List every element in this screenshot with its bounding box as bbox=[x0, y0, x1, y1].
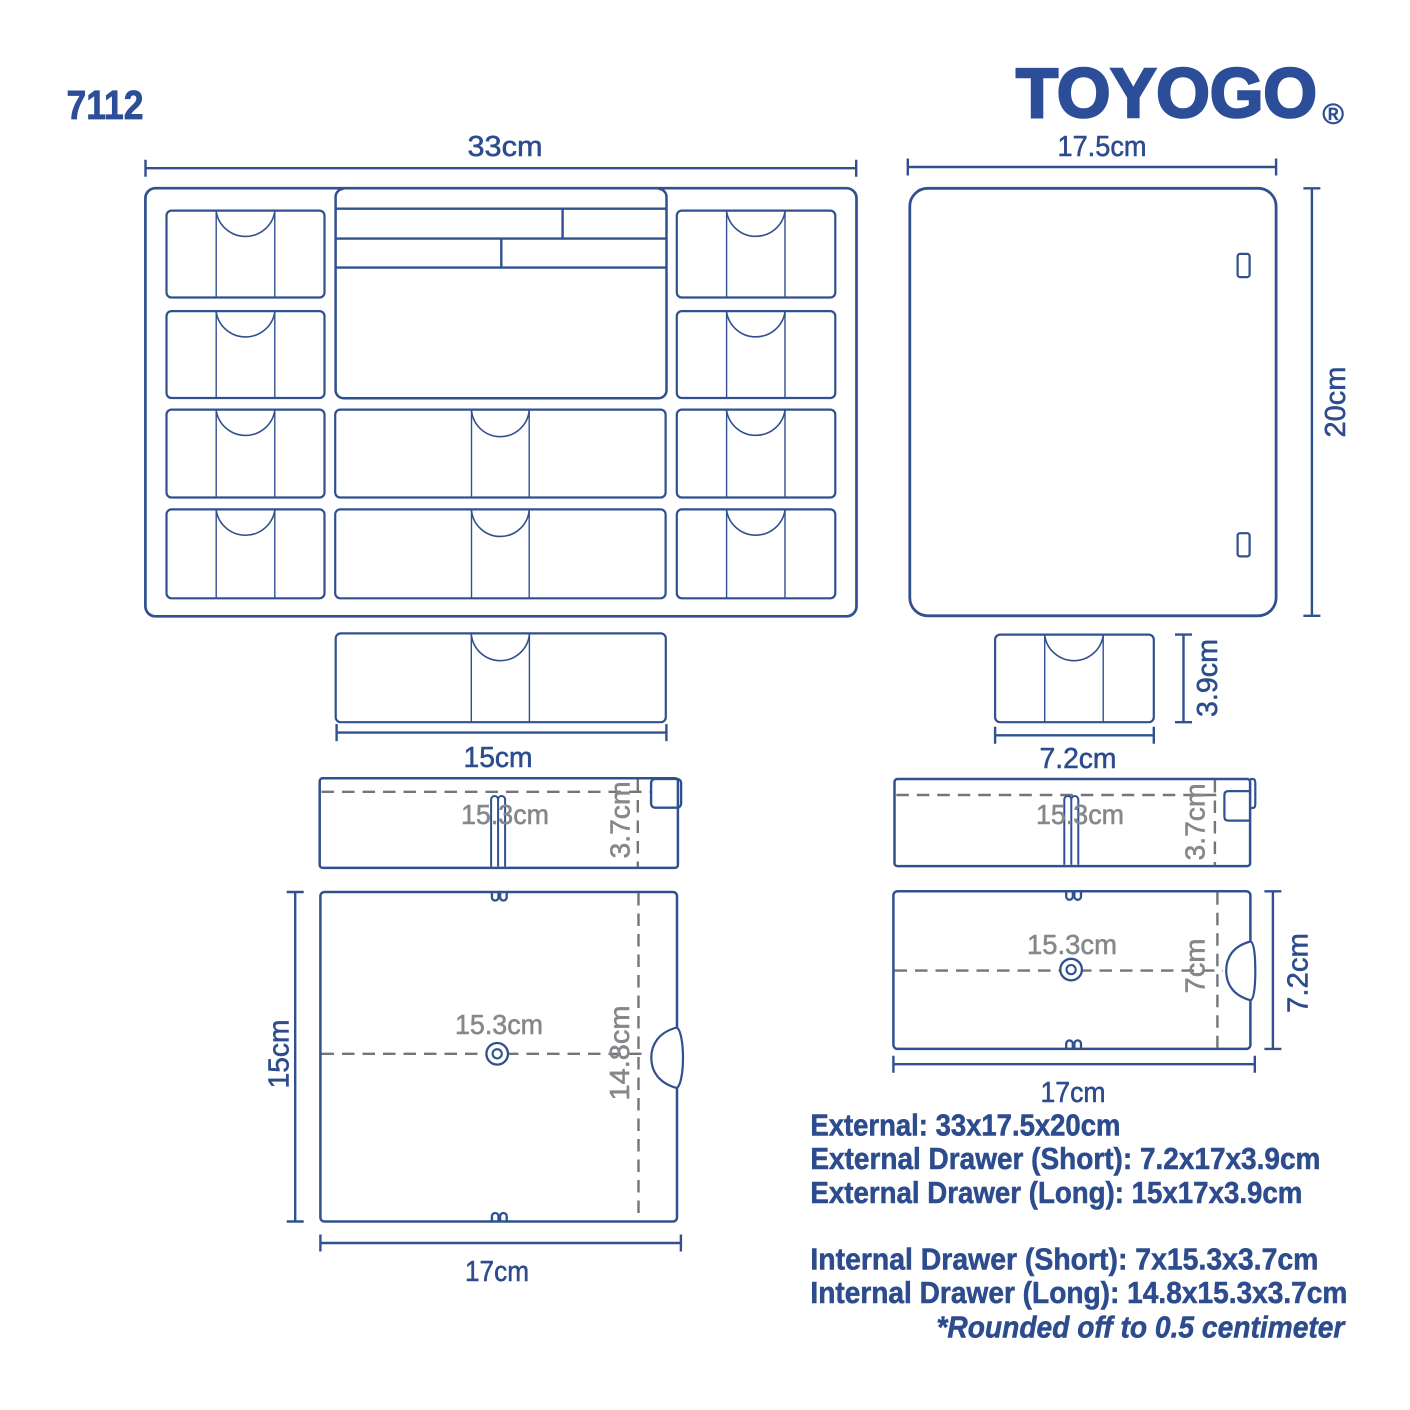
svg-text:®: ® bbox=[1323, 99, 1344, 131]
svg-text:20cm: 20cm bbox=[1320, 367, 1352, 438]
svg-text:*Rounded off to 0.5 centimeter: *Rounded off to 0.5 centimeter bbox=[936, 1310, 1346, 1345]
svg-text:3.7cm: 3.7cm bbox=[1180, 784, 1211, 861]
svg-text:14.8cm: 14.8cm bbox=[604, 1006, 635, 1101]
svg-text:15.3cm: 15.3cm bbox=[1036, 799, 1124, 830]
svg-text:15.3cm: 15.3cm bbox=[455, 1009, 543, 1040]
svg-text:External: 33x17.5x20cm: External: 33x17.5x20cm bbox=[810, 1108, 1120, 1143]
svg-text:15cm: 15cm bbox=[264, 1020, 296, 1089]
svg-text:15cm: 15cm bbox=[464, 742, 533, 774]
svg-text:15.3cm: 15.3cm bbox=[461, 799, 549, 830]
svg-text:7.2cm: 7.2cm bbox=[1040, 743, 1117, 775]
svg-text:7.2cm: 7.2cm bbox=[1283, 933, 1315, 1013]
svg-text:7cm: 7cm bbox=[1180, 939, 1211, 994]
svg-text:TOYOGO: TOYOGO bbox=[1016, 54, 1317, 132]
svg-text:17cm: 17cm bbox=[465, 1256, 529, 1288]
svg-text:7112: 7112 bbox=[67, 82, 144, 128]
svg-text:External Drawer (Long): 15x17x: External Drawer (Long): 15x17x3.9cm bbox=[810, 1175, 1302, 1210]
svg-text:3.9cm: 3.9cm bbox=[1192, 639, 1224, 717]
svg-text:3.7cm: 3.7cm bbox=[605, 782, 636, 859]
svg-text:17cm: 17cm bbox=[1041, 1077, 1106, 1109]
svg-text:17.5cm: 17.5cm bbox=[1058, 131, 1147, 163]
svg-text:Internal Drawer (Short): 7x15.: Internal Drawer (Short): 7x15.3x3.7cm bbox=[810, 1242, 1318, 1277]
svg-text:Internal Drawer (Long): 14.8x1: Internal Drawer (Long): 14.8x15.3x3.7cm bbox=[810, 1275, 1347, 1310]
svg-text:External Drawer (Short): 7.2x1: External Drawer (Short): 7.2x17x3.9cm bbox=[810, 1141, 1320, 1176]
svg-text:33cm: 33cm bbox=[468, 131, 543, 163]
svg-text:15.3cm: 15.3cm bbox=[1027, 929, 1117, 960]
